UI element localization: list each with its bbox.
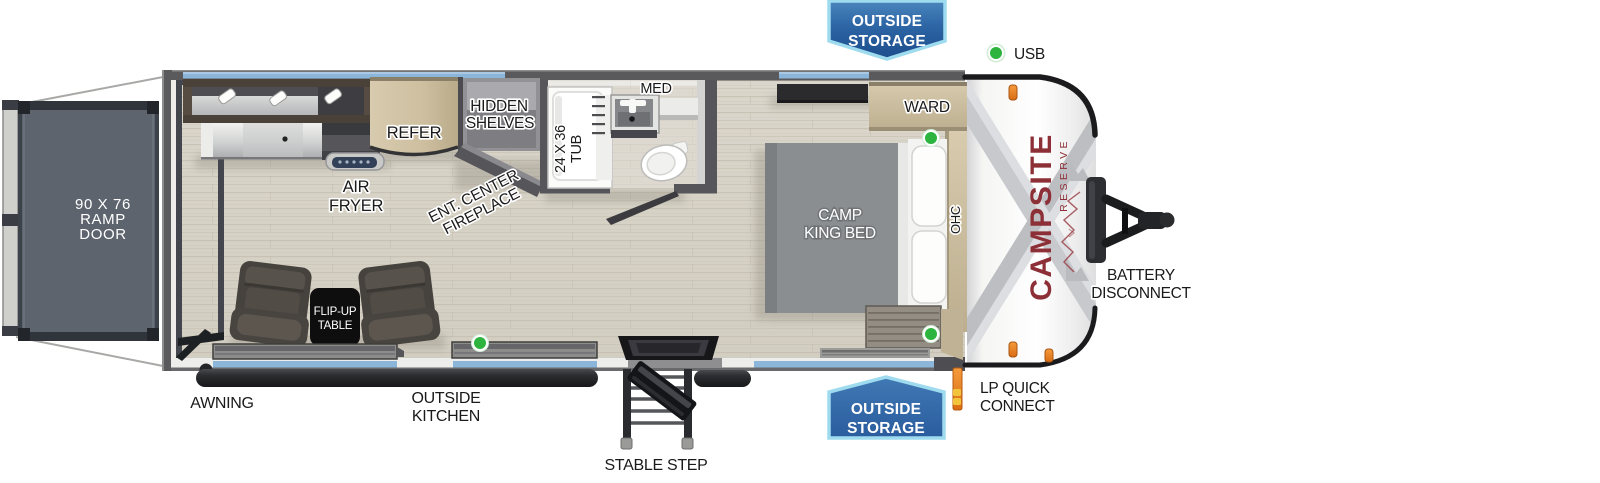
svg-text:MED: MED <box>640 81 671 97</box>
svg-text:TABLE: TABLE <box>318 320 353 332</box>
svg-text:TUB: TUB <box>569 135 585 163</box>
svg-text:AWNING: AWNING <box>190 395 253 412</box>
svg-text:CAMP: CAMP <box>818 207 862 224</box>
svg-text:STABLE STEP: STABLE STEP <box>604 457 707 474</box>
svg-text:FRYER: FRYER <box>329 197 384 215</box>
svg-text:STORAGE: STORAGE <box>847 420 925 437</box>
svg-text:STORAGE: STORAGE <box>848 33 926 50</box>
svg-text:KING BED: KING BED <box>804 225 876 242</box>
svg-text:SHELVES: SHELVES <box>466 115 534 132</box>
svg-text:CONNECT: CONNECT <box>980 398 1055 415</box>
svg-text:USB: USB <box>1014 46 1045 63</box>
svg-text:OUTSIDE: OUTSIDE <box>852 13 922 30</box>
svg-text:BATTERY: BATTERY <box>1107 267 1175 284</box>
svg-text:DISCONNECT: DISCONNECT <box>1091 285 1191 302</box>
svg-text:LP QUICK: LP QUICK <box>980 380 1051 397</box>
svg-text:OUTSIDE: OUTSIDE <box>411 390 480 407</box>
svg-text:WARD: WARD <box>904 99 950 116</box>
svg-text:OUTSIDE: OUTSIDE <box>851 401 921 418</box>
svg-text:FLIP-UP: FLIP-UP <box>314 306 357 318</box>
svg-text:AIR: AIR <box>343 178 370 196</box>
svg-text:HIDDEN: HIDDEN <box>470 98 528 115</box>
svg-text:REFER: REFER <box>387 124 442 142</box>
svg-text:CAMPSITE: CAMPSITE <box>1025 133 1058 301</box>
svg-text:DOOR: DOOR <box>79 226 126 243</box>
svg-text:KITCHEN: KITCHEN <box>412 408 480 425</box>
svg-text:24 X 36: 24 X 36 <box>553 125 569 173</box>
svg-text:OHC: OHC <box>948 206 963 234</box>
